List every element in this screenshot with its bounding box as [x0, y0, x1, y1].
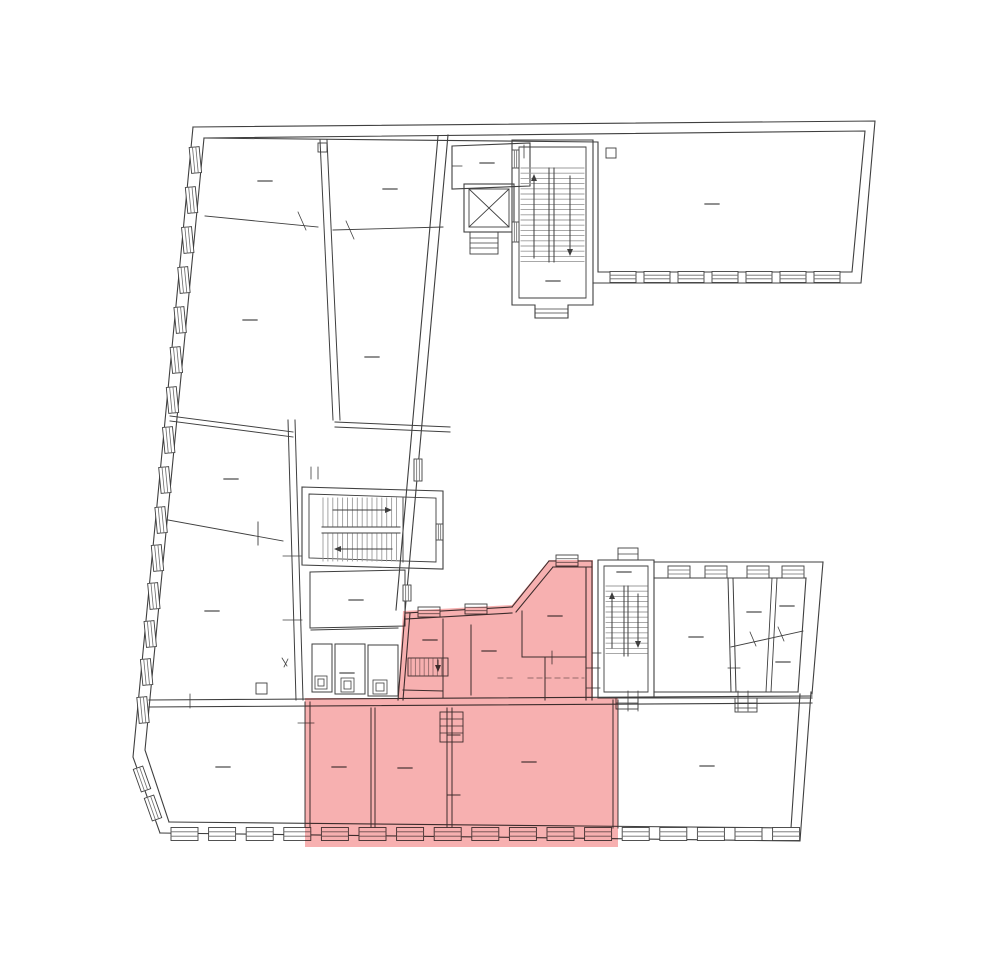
window-icon: [747, 566, 769, 578]
window-icon: [773, 828, 800, 841]
window-icon: [622, 828, 649, 841]
window-icon: [178, 267, 190, 294]
window-icon: [512, 222, 519, 242]
window-icon: [189, 147, 201, 174]
window-icon: [668, 566, 690, 578]
window-icon: [155, 507, 167, 534]
window-icon: [246, 828, 273, 841]
column-square: [318, 143, 327, 152]
window-icon: [697, 828, 724, 841]
window-icon: [414, 459, 422, 481]
floor-plan-page: [0, 0, 1000, 966]
highlighted-unit-overlay[interactable]: [305, 560, 618, 847]
stair-arrow-icon: [635, 594, 641, 648]
stair-direction-arrows: [333, 174, 641, 672]
window-icon: [185, 187, 197, 214]
window-icon: [159, 467, 171, 494]
window-icon: [403, 585, 411, 601]
window-icon: [436, 524, 443, 540]
window-icon: [780, 272, 806, 283]
window-icon: [209, 828, 236, 841]
window-icon: [137, 697, 149, 724]
window-icon: [163, 427, 175, 454]
window-icon: [712, 272, 738, 283]
window-icon: [171, 828, 198, 841]
floor-plan-drawing: [0, 0, 1000, 966]
window-icon: [182, 227, 194, 254]
window-icon: [644, 272, 670, 283]
window-icon: [610, 272, 636, 283]
window-icon: [678, 272, 704, 283]
window-icon: [814, 272, 840, 283]
window-icon: [705, 566, 727, 578]
stair-arrow-icon: [531, 174, 537, 258]
column-square: [606, 148, 616, 158]
window-icon: [512, 150, 519, 168]
elevator-x-icon: [469, 189, 509, 227]
window-icon: [735, 828, 762, 841]
stair-arrow-icon: [567, 176, 573, 256]
window-icon: [144, 621, 156, 648]
window-icon: [151, 545, 163, 572]
window-icon: [140, 659, 152, 686]
window-icon: [660, 828, 687, 841]
shaft-square: [256, 683, 267, 694]
window-icon: [144, 795, 161, 821]
window-icon: [133, 766, 150, 792]
window-icon: [782, 566, 804, 578]
main-stairwell: [512, 140, 593, 318]
window-icon: [746, 272, 772, 283]
window-icon: [166, 387, 178, 414]
window-icon: [148, 583, 160, 610]
window-icon: [174, 307, 186, 334]
window-icon: [170, 347, 182, 374]
stair-arrow-icon: [609, 592, 615, 648]
